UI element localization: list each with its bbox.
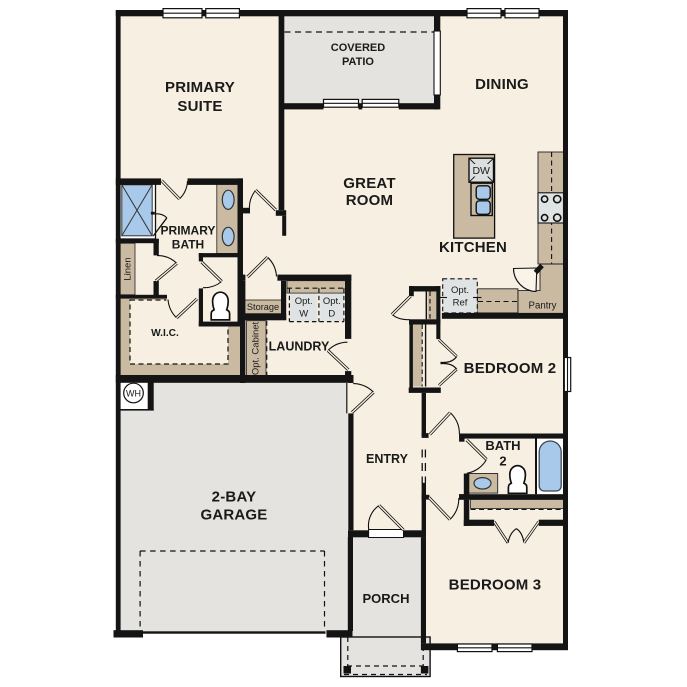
svg-text:PRIMARY: PRIMARY — [165, 79, 235, 96]
svg-text:WH: WH — [126, 388, 141, 398]
svg-text:PORCH: PORCH — [363, 591, 410, 606]
svg-text:ROOM: ROOM — [346, 192, 393, 209]
svg-text:COVERED: COVERED — [331, 42, 385, 54]
svg-text:W: W — [299, 309, 308, 320]
svg-text:Linen: Linen — [123, 257, 134, 280]
svg-text:GARAGE: GARAGE — [200, 507, 267, 524]
svg-text:Opt. Cabinet: Opt. Cabinet — [251, 321, 262, 375]
svg-text:LAUNDRY: LAUNDRY — [269, 340, 330, 354]
svg-text:Ref: Ref — [453, 298, 468, 309]
svg-text:2-BAY: 2-BAY — [212, 489, 257, 506]
svg-text:DINING: DINING — [475, 76, 529, 93]
svg-text:DW: DW — [472, 165, 490, 177]
svg-text:BEDROOM 2: BEDROOM 2 — [464, 360, 557, 377]
svg-text:BATH: BATH — [172, 238, 204, 252]
svg-text:PATIO: PATIO — [342, 56, 374, 68]
svg-text:GREAT: GREAT — [343, 175, 395, 192]
svg-text:KITCHEN: KITCHEN — [439, 239, 507, 256]
svg-text:PRIMARY: PRIMARY — [161, 224, 216, 238]
svg-text:Storage: Storage — [247, 302, 279, 312]
svg-text:ENTRY: ENTRY — [366, 452, 409, 466]
svg-text:BEDROOM 3: BEDROOM 3 — [449, 577, 542, 594]
svg-text:Pantry: Pantry — [529, 301, 557, 312]
svg-text:W.I.C.: W.I.C. — [151, 328, 179, 339]
svg-text:Opt.: Opt. — [451, 285, 469, 296]
svg-text:SUITE: SUITE — [177, 98, 222, 115]
svg-text:2: 2 — [499, 454, 506, 469]
svg-text:D: D — [328, 309, 335, 320]
svg-text:Opt.: Opt. — [295, 296, 313, 307]
svg-text:BATH: BATH — [485, 438, 520, 453]
svg-text:Opt.: Opt. — [323, 296, 341, 307]
